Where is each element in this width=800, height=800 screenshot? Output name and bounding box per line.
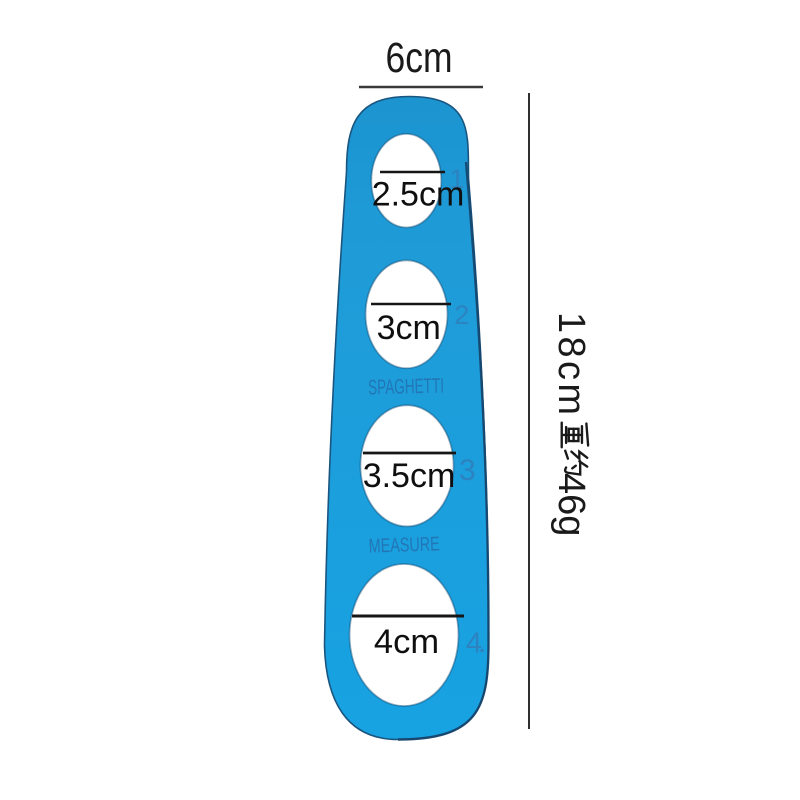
svg-text:3: 3 (459, 454, 476, 487)
svg-text:2: 2 (454, 300, 469, 330)
svg-text:MEASURE: MEASURE (368, 533, 440, 557)
svg-text:18cm: 18cm (550, 312, 592, 415)
svg-text:2.5cm: 2.5cm (372, 175, 465, 213)
svg-text:6cm: 6cm (386, 34, 453, 82)
svg-text:4: 4 (466, 628, 482, 660)
svg-text:SPAGHETTI: SPAGHETTI (368, 375, 445, 400)
svg-text:3cm: 3cm (377, 309, 441, 347)
svg-text:3.5cm: 3.5cm (363, 457, 456, 495)
svg-text:46g: 46g (550, 473, 592, 536)
svg-text:4cm: 4cm (374, 623, 439, 661)
